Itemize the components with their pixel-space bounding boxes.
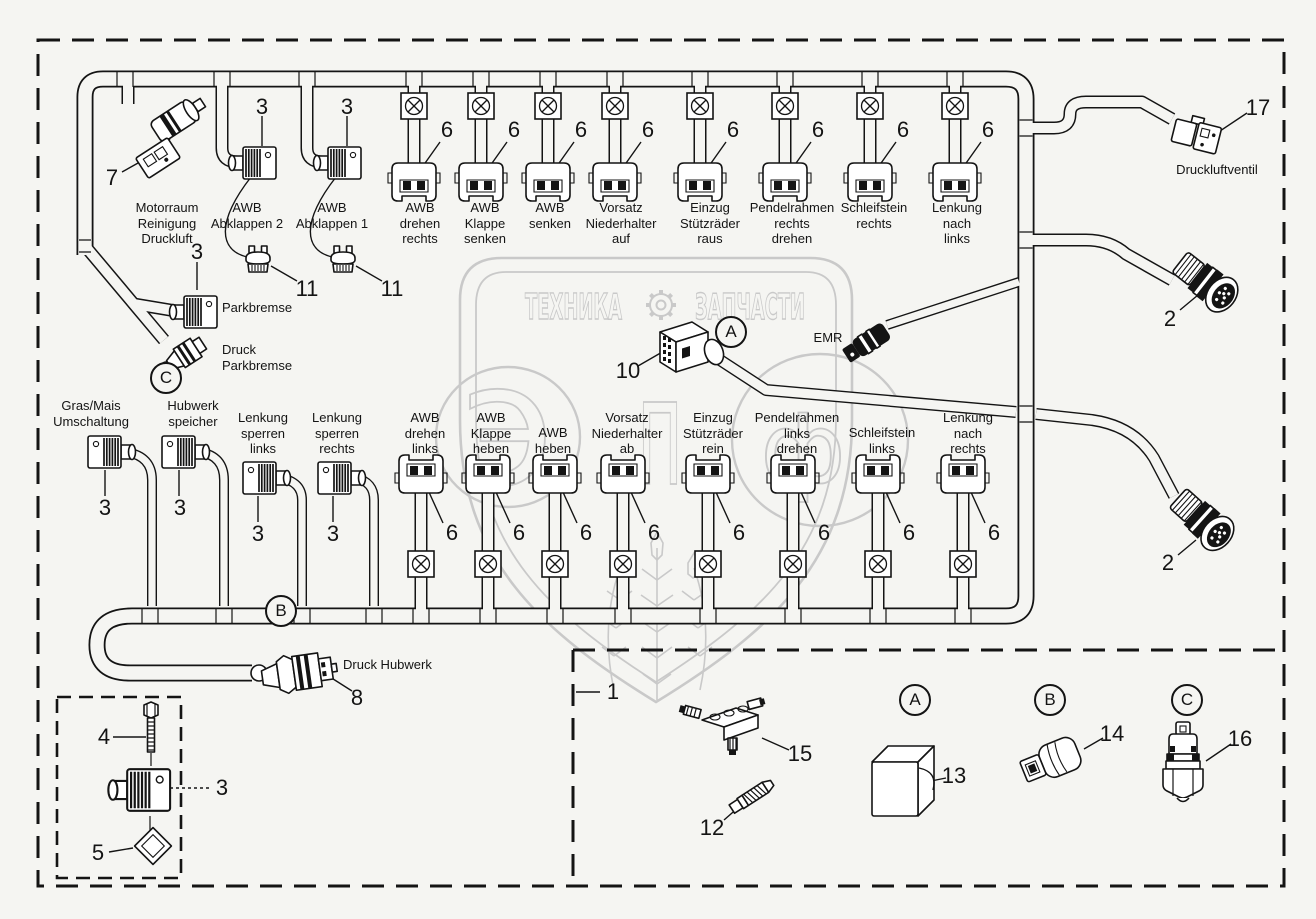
callout-4: 4	[98, 726, 110, 748]
round-connector-top	[1168, 247, 1244, 318]
callout-3-abklappen1: 3	[341, 96, 353, 118]
ref-c-part: C	[1171, 684, 1203, 716]
callout-1: 1	[607, 681, 619, 703]
connector-emr	[841, 322, 892, 365]
harness-diagram-canvas: э п ф ТЕХНИКА ЗАПЧАСТИ	[0, 0, 1316, 919]
label-lenkung-sperren-links: Lenkung sperren links	[238, 410, 288, 457]
callout-12: 12	[700, 817, 724, 839]
label-awb-abklappen-2: AWB Abklappen 2	[211, 200, 283, 231]
callout-11-a: 11	[296, 278, 319, 300]
callout-13: 13	[942, 765, 966, 787]
connector-druckluftventil	[1171, 112, 1223, 154]
callout-11-b: 11	[381, 278, 404, 300]
label-schleifstein-links: Schleifstein links	[849, 425, 915, 456]
parts-diagram-page: э п ф ТЕХНИКА ЗАПЧАСТИ	[0, 0, 1316, 919]
callout-6-b6: 6	[818, 522, 830, 544]
inset-bolt	[144, 702, 158, 752]
callout-8: 8	[351, 687, 363, 709]
callout-5: 5	[92, 842, 104, 864]
callout-10: 10	[616, 360, 640, 382]
part-pressure-sensor-16	[1163, 722, 1203, 802]
callout-6-t4: 6	[642, 119, 654, 141]
callout-14: 14	[1100, 723, 1124, 745]
callout-6-b7: 6	[903, 522, 915, 544]
part-pressure-switch-14	[1017, 735, 1084, 788]
gear-icon	[646, 290, 676, 320]
part-relay-box-13	[872, 746, 934, 816]
callout-6-t6: 6	[812, 119, 824, 141]
ref-a-part: A	[899, 684, 931, 716]
callout-6-b3: 6	[580, 522, 592, 544]
callout-3-sperren-links: 3	[252, 523, 264, 545]
callout-7: 7	[106, 167, 118, 189]
connector-motorraum	[136, 93, 210, 179]
callout-3-inset: 3	[216, 777, 228, 799]
label-druck-parkbremse: Druck Parkbremse	[222, 342, 292, 373]
label-motorraum: Motorraum Reinigung Druckluft	[136, 200, 199, 247]
label-lenkung-nach-links: Lenkung nach links	[932, 200, 982, 247]
callout-6-t5: 6	[727, 119, 739, 141]
callout-15: 15	[788, 743, 812, 765]
label-awb-abklappen-1: AWB Abklappen 1	[296, 200, 368, 231]
label-awb-klappe-senken: AWB Klappe senken	[464, 200, 506, 247]
callout-6-t2: 6	[508, 119, 520, 141]
callout-3-hubwerk: 3	[174, 497, 186, 519]
label-awb-heben: AWB heben	[535, 425, 571, 456]
callout-6-t3: 6	[575, 119, 587, 141]
label-pendelrahmen-links-drehen: Pendelrahmen links drehen	[755, 410, 840, 457]
callout-6-b2: 6	[513, 522, 525, 544]
part-plug-screw-12	[729, 778, 776, 814]
callout-3-parkbremse: 3	[191, 241, 203, 263]
round-connector-bottom	[1165, 484, 1240, 557]
callout-6-b5: 6	[733, 522, 745, 544]
label-pendelrahmen-rechts-drehen: Pendelrahmen rechts drehen	[750, 200, 835, 247]
callout-6-b4: 6	[648, 522, 660, 544]
label-parkbremse: Parkbremse	[222, 300, 292, 316]
callout-3-abklappen2: 3	[256, 96, 268, 118]
ref-a-harness: A	[715, 316, 747, 348]
label-schleifstein-rechts: Schleifstein rechts	[841, 200, 907, 231]
ref-c-harness: C	[150, 362, 182, 394]
label-druck-hubwerk: Druck Hubwerk	[343, 657, 432, 673]
label-gras-mais: Gras/Mais Umschaltung	[53, 398, 129, 429]
label-awb-senken: AWB senken	[529, 200, 571, 231]
callout-2-top: 2	[1164, 308, 1176, 330]
callout-6-b8: 6	[988, 522, 1000, 544]
label-vorsatz-niederhalter-auf: Vorsatz Niederhalter auf	[586, 200, 657, 247]
callout-17: 17	[1246, 97, 1270, 119]
label-vorsatz-niederhalter-ab: Vorsatz Niederhalter ab	[592, 410, 663, 457]
ref-b-part: B	[1034, 684, 1066, 716]
callout-3-sperren-rechts: 3	[327, 523, 339, 545]
callout-6-b1: 6	[446, 522, 458, 544]
label-awb-drehen-rechts: AWB drehen rechts	[400, 200, 440, 247]
label-awb-klappe-heben: AWB Klappe heben	[471, 410, 511, 457]
label-lenkung-nach-rechts: Lenkung nach rechts	[943, 410, 993, 457]
connector-druck-hubwerk	[260, 649, 340, 697]
part-manifold-15	[678, 697, 765, 755]
callout-2-bottom: 2	[1162, 552, 1174, 574]
closing-cap-1	[246, 246, 270, 272]
label-druckluftventil: Druckluftventil	[1176, 162, 1258, 178]
label-awb-drehen-links: AWB drehen links	[405, 410, 445, 457]
inset-seal	[135, 828, 172, 865]
closing-cap-2	[331, 246, 355, 272]
callout-6-t7: 6	[897, 119, 909, 141]
ref-b-harness: B	[265, 595, 297, 627]
label-emr: EMR	[814, 330, 843, 346]
callout-3-gras-mais: 3	[99, 497, 111, 519]
label-einzug-stuetzraeder-raus: Einzug Stützräder raus	[680, 200, 740, 247]
watermark-word-left: ТЕХНИКА	[525, 287, 622, 328]
label-lenkung-sperren-rechts: Lenkung sperren rechts	[312, 410, 362, 457]
callout-6-t1: 6	[441, 119, 453, 141]
label-hubwerk-speicher: Hubwerk speicher	[167, 398, 218, 429]
callout-16: 16	[1228, 728, 1252, 750]
watermark-word-right: ЗАПЧАСТИ	[695, 287, 805, 328]
callout-6-t8: 6	[982, 119, 994, 141]
label-einzug-stuetzraeder-rein: Einzug Stützräder rein	[683, 410, 743, 457]
